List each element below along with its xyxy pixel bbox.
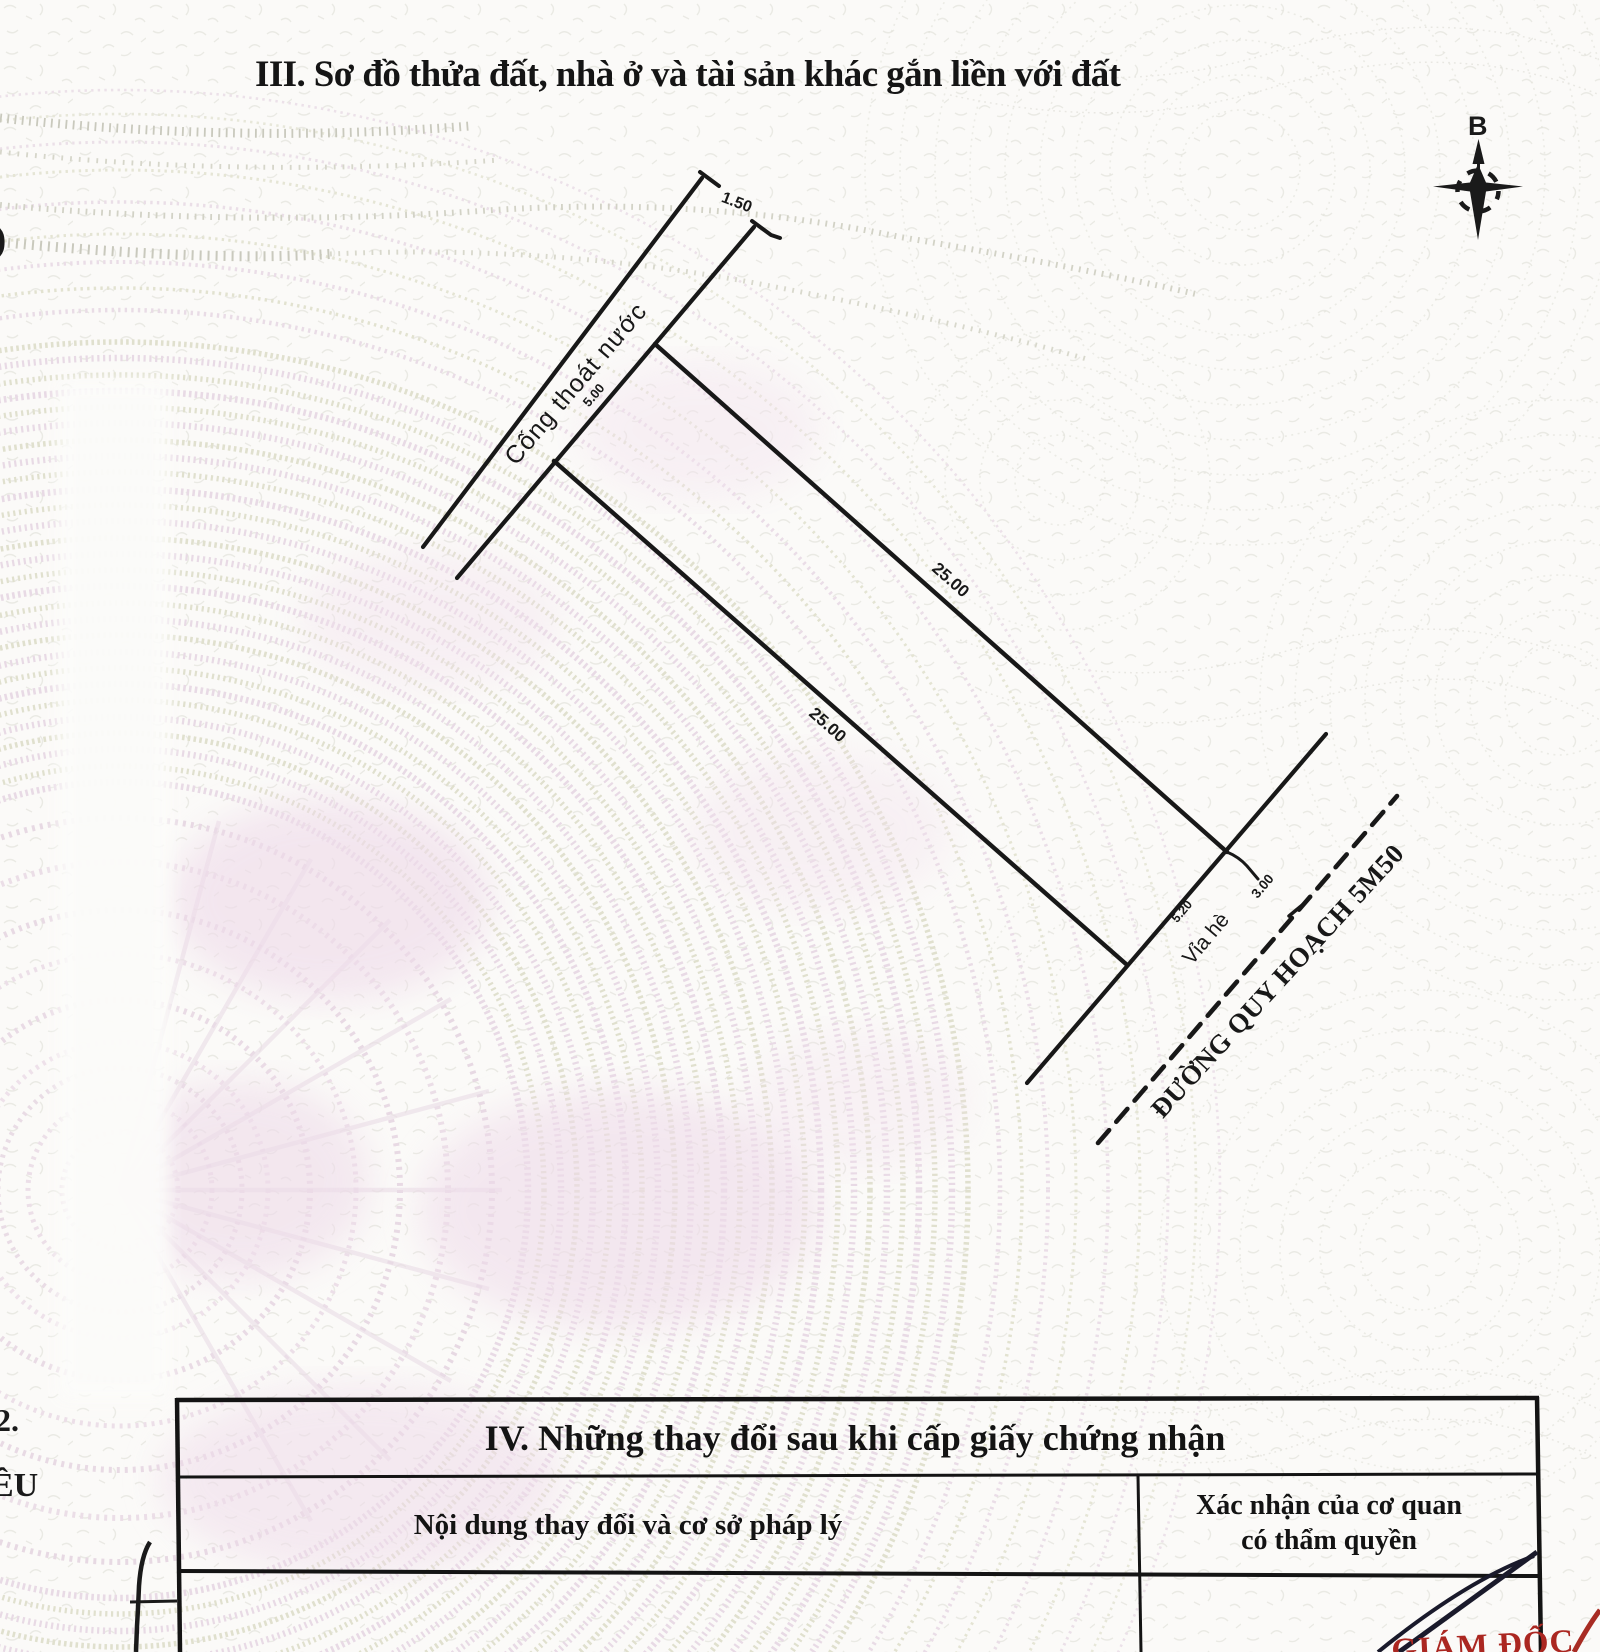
svg-text:có thẩm quyền: có thẩm quyền xyxy=(1241,1525,1417,1556)
svg-text:ỀU: ỀU xyxy=(0,1465,38,1504)
svg-text:Nội dung thay đổi và cơ sở phá: Nội dung thay đổi và cơ sở pháp lý xyxy=(414,1509,843,1541)
svg-text:B: B xyxy=(1468,111,1488,141)
svg-text:IV. Những thay đổi sau khi cấp: IV. Những thay đổi sau khi cấp giấy chứn… xyxy=(485,1418,1226,1458)
svg-text:2.: 2. xyxy=(0,1402,19,1438)
svg-text:Xác nhận của cơ quan: Xác nhận của cơ quan xyxy=(1196,1490,1462,1521)
svg-text:III. Sơ đồ thửa đất, nhà ở và: III. Sơ đồ thửa đất, nhà ở và tài sản kh… xyxy=(255,54,1122,95)
svg-text:): ) xyxy=(0,216,6,261)
